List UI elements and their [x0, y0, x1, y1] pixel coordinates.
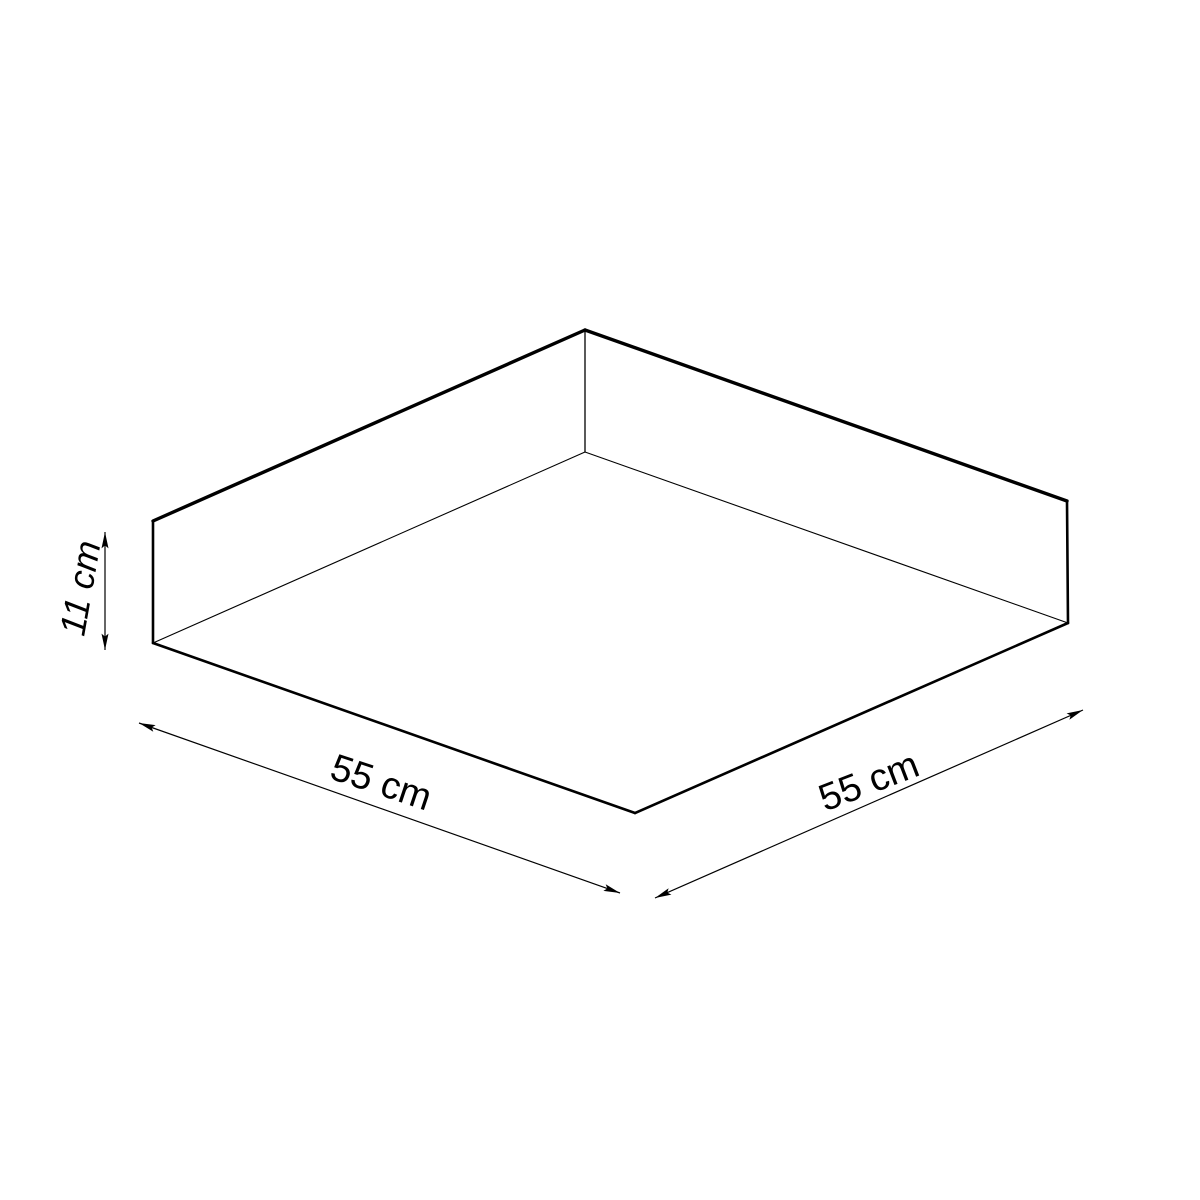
- width-dimension-right: 55 cm: [655, 710, 1083, 898]
- width-dimension-left: 55 cm: [139, 723, 620, 893]
- lamp-dimension-drawing: 11 cm 55 cm 55 cm: [0, 0, 1200, 1200]
- top-edge-right: [585, 330, 1067, 501]
- width-dimension-left-arrow: [139, 723, 620, 893]
- height-dimension-label: 11 cm: [52, 537, 109, 638]
- inner-bottom-edge-left: [153, 452, 585, 643]
- diagram-canvas: 11 cm 55 cm 55 cm: [0, 0, 1200, 1200]
- right-corner-edge: [1067, 501, 1068, 623]
- box-outline: [153, 330, 1068, 813]
- inner-bottom-edge-right: [585, 452, 1068, 623]
- top-edge-left: [153, 330, 585, 521]
- height-dimension: 11 cm: [52, 532, 109, 650]
- width-dimension-right-label: 55 cm: [813, 744, 925, 820]
